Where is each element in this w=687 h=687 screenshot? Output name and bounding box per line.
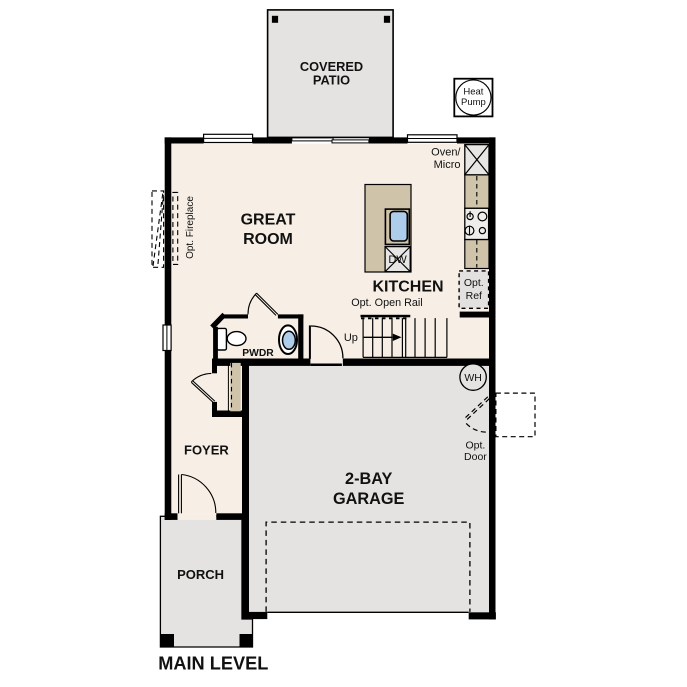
- svg-text:PORCH: PORCH: [177, 567, 224, 582]
- svg-text:Oven/: Oven/: [431, 147, 461, 159]
- svg-text:Opt. Fireplace: Opt. Fireplace: [185, 196, 196, 259]
- svg-text:KITCHEN: KITCHEN: [372, 279, 443, 296]
- svg-text:GREAT: GREAT: [241, 212, 296, 229]
- svg-text:PATIO: PATIO: [313, 73, 350, 88]
- svg-text:WH: WH: [464, 372, 482, 384]
- svg-text:Heat: Heat: [463, 87, 483, 98]
- svg-text:FOYER: FOYER: [184, 443, 229, 458]
- svg-text:Up: Up: [344, 332, 358, 344]
- svg-text:Pump: Pump: [461, 97, 486, 108]
- svg-text:MAIN LEVEL: MAIN LEVEL: [158, 653, 268, 673]
- svg-text:2-BAY: 2-BAY: [345, 470, 392, 488]
- svg-text:Opt.: Opt.: [464, 277, 484, 289]
- svg-text:Ref: Ref: [466, 290, 482, 302]
- svg-text:ROOM: ROOM: [243, 231, 293, 248]
- svg-text:Opt.: Opt.: [465, 440, 485, 452]
- svg-text:DW: DW: [388, 254, 407, 266]
- svg-text:Opt. Open Rail: Opt. Open Rail: [351, 297, 422, 309]
- svg-text:PWDR: PWDR: [242, 348, 274, 359]
- svg-text:Micro: Micro: [434, 159, 461, 171]
- svg-text:GARAGE: GARAGE: [333, 490, 405, 508]
- svg-text:Door: Door: [464, 451, 487, 463]
